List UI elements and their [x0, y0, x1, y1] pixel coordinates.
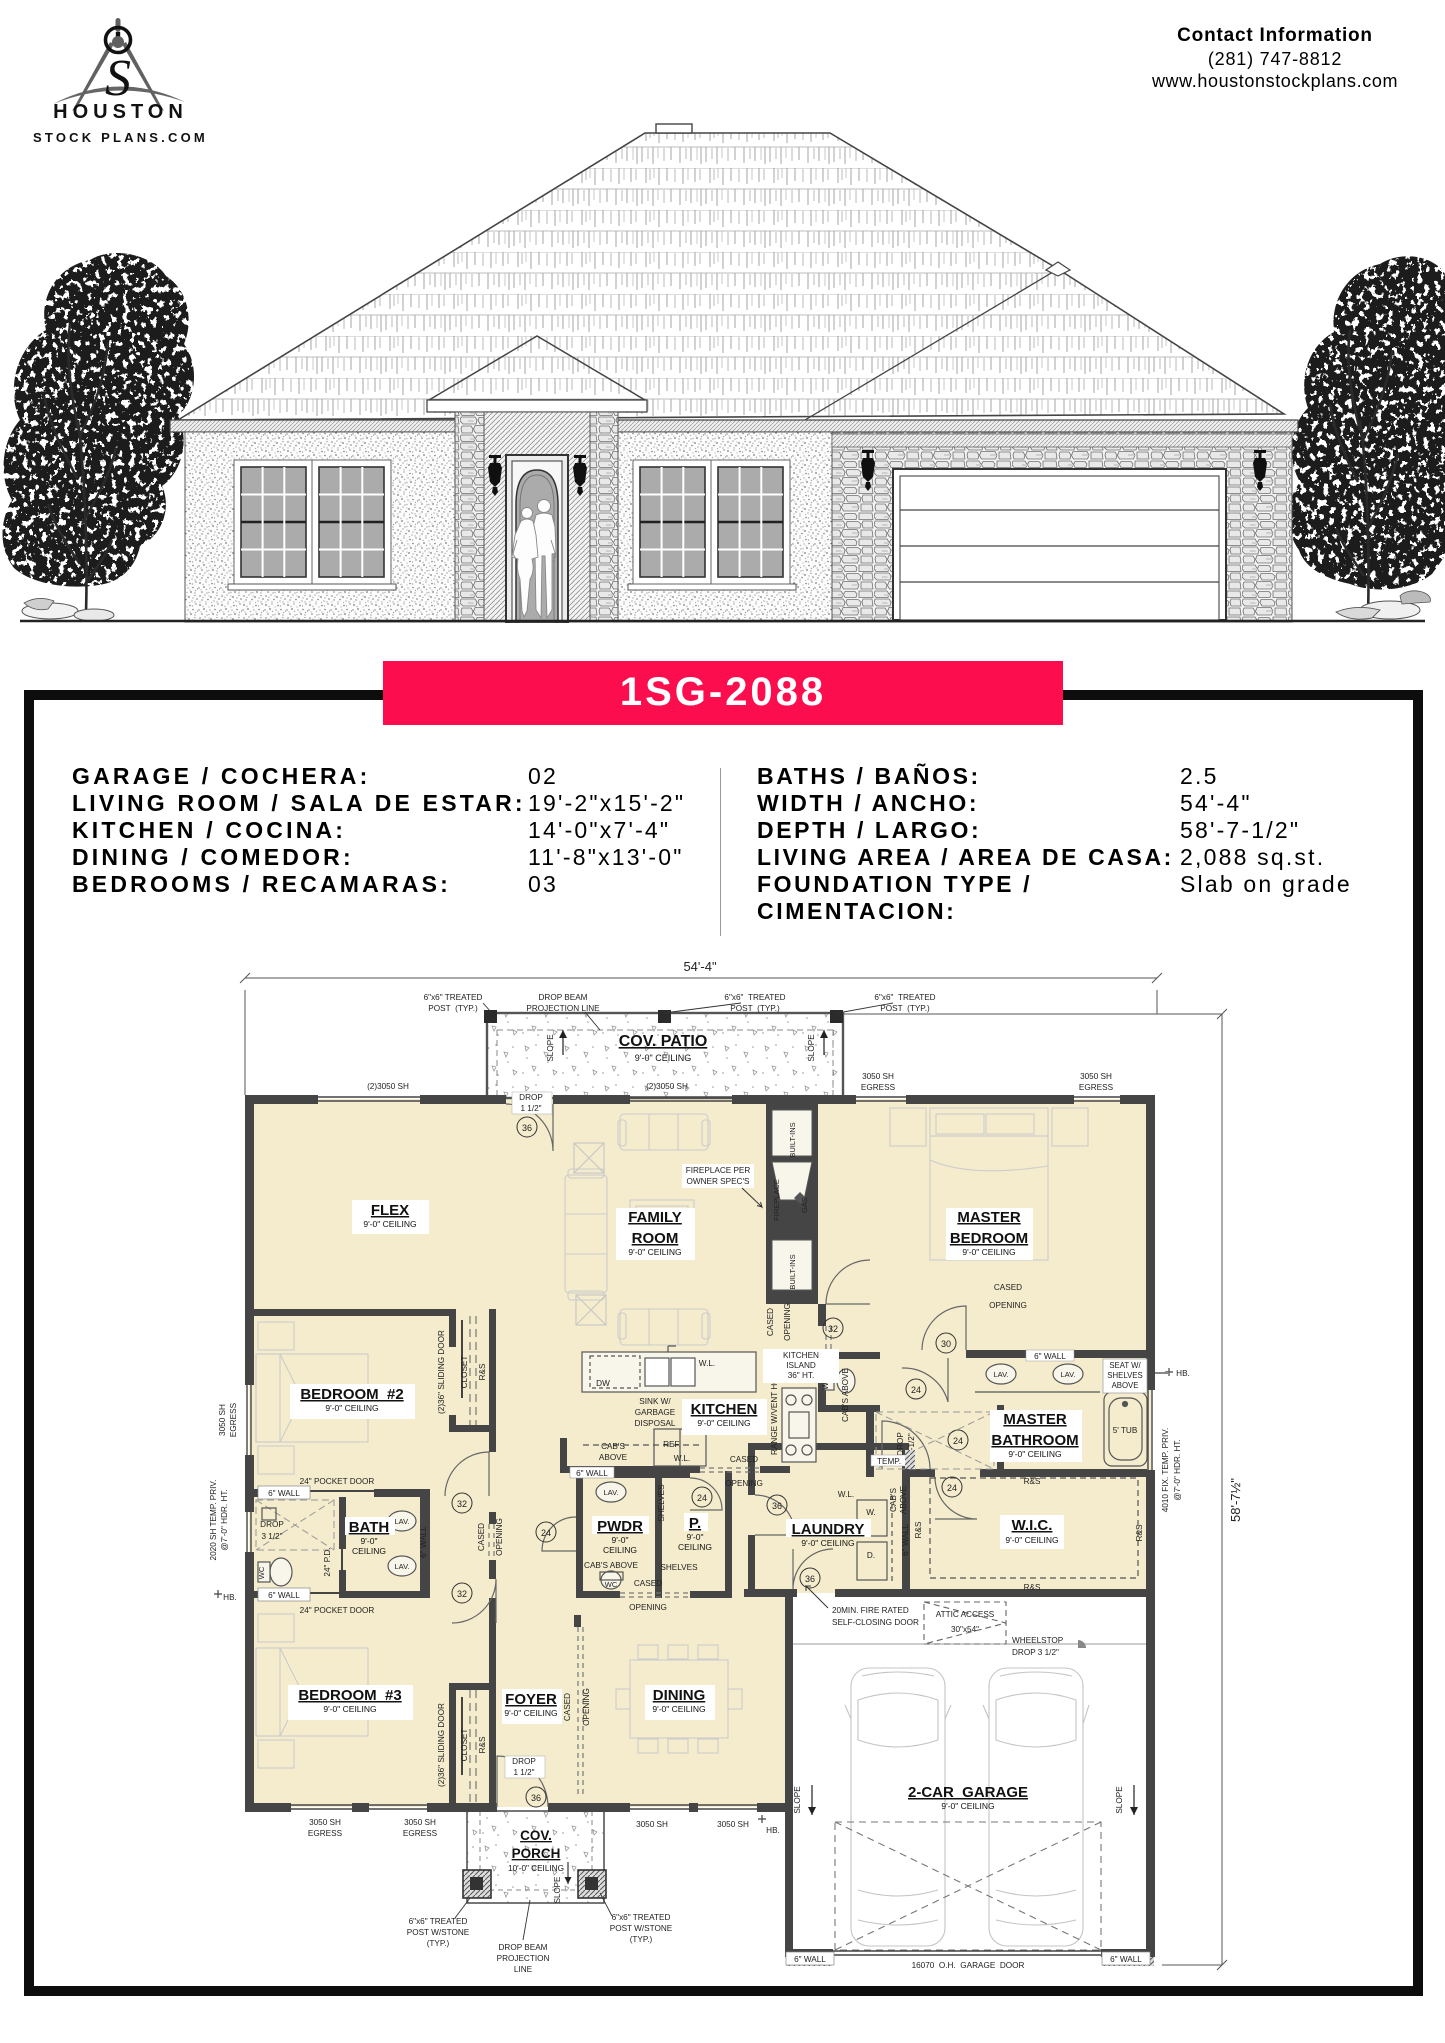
svg-text:OPENING: OPENING	[629, 1603, 667, 1612]
svg-text:(TYP.): (TYP.)	[630, 1935, 653, 1944]
svg-text:3050 SH: 3050 SH	[309, 1818, 341, 1827]
svg-text:(2)3050 SH: (2)3050 SH	[367, 1082, 409, 1091]
svg-text:KITCHEN: KITCHEN	[691, 1401, 758, 1418]
svg-text:BEDROOM: BEDROOM	[950, 1230, 1028, 1247]
svg-text:30"x54": 30"x54"	[951, 1625, 979, 1634]
svg-text:ATTIC ACCESS: ATTIC ACCESS	[936, 1610, 995, 1619]
svg-text:6" WALL: 6" WALL	[268, 1489, 300, 1498]
svg-text:R&S: R&S	[478, 1736, 487, 1753]
svg-text:6" WALL: 6" WALL	[901, 1524, 910, 1556]
svg-text:9'-0" CEILING: 9'-0" CEILING	[363, 1219, 416, 1229]
svg-text:W.I.C.: W.I.C.	[1012, 1517, 1053, 1534]
svg-text:TEMP.: TEMP.	[877, 1457, 901, 1466]
svg-text:24: 24	[953, 1436, 963, 1446]
svg-text:6"x6" TREATED: 6"x6" TREATED	[409, 1917, 468, 1926]
svg-text:EGRESS: EGRESS	[1079, 1083, 1114, 1092]
svg-text:FOYER: FOYER	[505, 1691, 557, 1708]
svg-text:36: 36	[522, 1123, 532, 1133]
svg-text:R&S: R&S	[1024, 1583, 1041, 1592]
svg-text:OPENING: OPENING	[495, 1518, 504, 1556]
svg-text:FLEX: FLEX	[371, 1202, 409, 1219]
svg-text:FIREPLACE PER: FIREPLACE PER	[686, 1166, 751, 1175]
svg-text:BATHROOM: BATHROOM	[991, 1432, 1078, 1449]
svg-text:6" WALL: 6" WALL	[1110, 1955, 1142, 1964]
svg-text:58'-7½": 58'-7½"	[1228, 1478, 1243, 1522]
svg-text:GARBAGE: GARBAGE	[635, 1408, 676, 1417]
svg-text:CAB'S: CAB'S	[889, 1488, 898, 1512]
svg-text:SELF-CLOSING DOOR: SELF-CLOSING DOOR	[832, 1618, 919, 1627]
svg-text:5' TUB: 5' TUB	[1113, 1426, 1138, 1435]
svg-text:ABOVE: ABOVE	[1112, 1381, 1139, 1390]
svg-text:54'-4": 54'-4"	[683, 959, 717, 974]
svg-text:6" WALL: 6" WALL	[576, 1469, 608, 1478]
svg-text:24: 24	[697, 1493, 707, 1503]
svg-text:OPENING: OPENING	[989, 1301, 1027, 1310]
svg-text:SLOPE: SLOPE	[807, 1034, 816, 1062]
svg-text:9'-0" CEILING: 9'-0" CEILING	[325, 1403, 378, 1413]
svg-text:REF.: REF.	[663, 1440, 681, 1449]
svg-text:9'-0" CEILING: 9'-0" CEILING	[801, 1538, 854, 1548]
svg-text:BEDROOM #2: BEDROOM #2	[300, 1386, 403, 1403]
svg-text:36" HT.: 36" HT.	[788, 1371, 815, 1380]
svg-text:3050 SH: 3050 SH	[862, 1072, 894, 1081]
svg-text:6"x6" TREATED: 6"x6" TREATED	[874, 993, 935, 1002]
svg-text:9'-0" CEILING: 9'-0" CEILING	[652, 1704, 705, 1714]
svg-text:@7'-0" HDR. HT.: @7'-0" HDR. HT.	[220, 1489, 229, 1550]
svg-text:DROP: DROP	[512, 1757, 536, 1766]
svg-text:(2)36" SLIDING DOOR: (2)36" SLIDING DOOR	[437, 1703, 446, 1787]
svg-text:24: 24	[947, 1483, 957, 1493]
svg-text:R&S: R&S	[1024, 1477, 1041, 1486]
svg-text:R&S: R&S	[914, 1521, 923, 1538]
svg-text:36: 36	[531, 1793, 541, 1803]
svg-text:CASED: CASED	[477, 1523, 486, 1551]
svg-text:36: 36	[772, 1501, 782, 1511]
svg-text:9'-0" CEILING: 9'-0" CEILING	[504, 1708, 557, 1718]
svg-text:MASTER: MASTER	[1003, 1411, 1067, 1428]
svg-text:(2)3050 SH: (2)3050 SH	[646, 1082, 688, 1091]
svg-text:LINE: LINE	[514, 1965, 533, 1974]
svg-text:9'-0" CEILING: 9'-0" CEILING	[635, 1053, 691, 1063]
svg-text:32: 32	[457, 1589, 467, 1599]
svg-text:HB.: HB.	[223, 1593, 237, 1602]
svg-text:3050 SH: 3050 SH	[218, 1404, 227, 1436]
svg-text:HB.: HB.	[1176, 1369, 1190, 1378]
svg-text:PORCH: PORCH	[512, 1846, 561, 1861]
svg-text:BUILT-INS: BUILT-INS	[788, 1122, 797, 1157]
svg-text:SEAT W/: SEAT W/	[1109, 1361, 1141, 1370]
svg-text:DROP: DROP	[260, 1520, 284, 1529]
svg-text:6" WALL: 6" WALL	[268, 1591, 300, 1600]
svg-text:EGRESS: EGRESS	[229, 1402, 238, 1437]
svg-text:OPENING: OPENING	[783, 1303, 792, 1341]
svg-text:10'-0" CEILING: 10'-0" CEILING	[508, 1864, 564, 1873]
svg-text:EGRESS: EGRESS	[861, 1083, 896, 1092]
svg-text:FIREPLACE: FIREPLACE	[772, 1179, 781, 1221]
svg-text:SHELVES: SHELVES	[660, 1563, 698, 1572]
svg-text:SLOPE: SLOPE	[553, 1877, 562, 1904]
svg-text:SLOPE: SLOPE	[546, 1034, 555, 1062]
svg-text:COV.: COV.	[520, 1828, 552, 1843]
svg-text:9'-0" CEILING: 9'-0" CEILING	[323, 1704, 376, 1714]
svg-text:9'-0" CEILING: 9'-0" CEILING	[628, 1247, 681, 1257]
svg-text:W.L.: W.L.	[699, 1359, 715, 1368]
svg-text:36: 36	[805, 1574, 815, 1584]
svg-text:P.: P.	[689, 1515, 701, 1532]
svg-text:16070 O.H. GARAGE DOOR: 16070 O.H. GARAGE DOOR	[912, 1961, 1025, 1970]
svg-text:FAMILY: FAMILY	[628, 1209, 682, 1226]
svg-text:GAS: GAS	[800, 1197, 809, 1213]
svg-text:1 1/2": 1 1/2"	[520, 1104, 541, 1113]
svg-text:24: 24	[911, 1385, 921, 1395]
svg-text:DW: DW	[596, 1379, 610, 1388]
svg-text:32: 32	[457, 1499, 467, 1509]
svg-text:DROP: DROP	[896, 1432, 905, 1456]
svg-text:CEILING: CEILING	[352, 1546, 386, 1556]
svg-text:CASED: CASED	[634, 1579, 662, 1588]
svg-text:SLOPE: SLOPE	[1115, 1786, 1124, 1814]
svg-text:SINK W/: SINK W/	[639, 1397, 671, 1406]
svg-text:PROJECTION: PROJECTION	[497, 1954, 550, 1963]
svg-text:3 1/2": 3 1/2"	[261, 1532, 282, 1541]
svg-text:9'-0": 9'-0"	[687, 1532, 704, 1542]
svg-text:PROJECTION LINE: PROJECTION LINE	[526, 1004, 600, 1013]
svg-text:CLOSET: CLOSET	[460, 1356, 469, 1389]
svg-text:PWDR: PWDR	[597, 1518, 643, 1535]
svg-text:6"x6" TREATED: 6"x6" TREATED	[724, 993, 785, 1002]
svg-text:OPENING: OPENING	[725, 1479, 763, 1488]
svg-text:@7'-0" HDR. HT.: @7'-0" HDR. HT.	[1173, 1439, 1182, 1500]
svg-text:WHEELSTOP: WHEELSTOP	[1012, 1636, 1064, 1645]
svg-text:EGRESS: EGRESS	[308, 1829, 343, 1838]
svg-text:CASED: CASED	[563, 1693, 572, 1721]
svg-text:W.L.: W.L.	[838, 1490, 854, 1499]
svg-text:ABOVE: ABOVE	[599, 1453, 628, 1462]
svg-text:ISLAND: ISLAND	[786, 1361, 816, 1370]
svg-text:R&S: R&S	[1135, 1524, 1144, 1541]
svg-text:30: 30	[941, 1339, 951, 1349]
svg-text:WC: WC	[605, 1580, 618, 1589]
svg-text:KITCHEN: KITCHEN	[783, 1351, 819, 1360]
svg-text:HB.: HB.	[766, 1826, 780, 1835]
svg-text:6" WALL: 6" WALL	[794, 1955, 826, 1964]
svg-text:20MIN. FIRE RATED: 20MIN. FIRE RATED	[832, 1606, 909, 1615]
svg-text:2-CAR GARAGE: 2-CAR GARAGE	[908, 1784, 1028, 1801]
svg-text:W.L.: W.L.	[674, 1454, 690, 1463]
svg-text:CEILING: CEILING	[678, 1542, 712, 1552]
svg-text:WC: WC	[257, 1566, 266, 1579]
svg-text:DROP: DROP	[519, 1093, 543, 1102]
svg-text:LAV.: LAV.	[1060, 1370, 1075, 1379]
svg-text:POST (TYP.): POST (TYP.)	[730, 1004, 780, 1013]
svg-text:LAV.: LAV.	[993, 1370, 1008, 1379]
svg-text:(TYP.): (TYP.)	[427, 1939, 450, 1948]
svg-text:POST (TYP.): POST (TYP.)	[428, 1004, 478, 1013]
svg-text:DROP BEAM: DROP BEAM	[499, 1943, 548, 1952]
svg-text:9'-0" CEILING: 9'-0" CEILING	[697, 1418, 750, 1428]
svg-text:2020 SH TEMP. PRIV.: 2020 SH TEMP. PRIV.	[209, 1480, 218, 1561]
svg-text:ROOM: ROOM	[632, 1230, 679, 1247]
svg-text:W.: W.	[866, 1508, 876, 1517]
svg-text:1 1/2": 1 1/2"	[513, 1768, 534, 1777]
svg-text:MASTER: MASTER	[957, 1209, 1021, 1226]
svg-text:6" WALL: 6" WALL	[1034, 1352, 1066, 1361]
svg-text:24" P.D.: 24" P.D.	[323, 1547, 332, 1576]
svg-text:6"x6" TREATED: 6"x6" TREATED	[424, 993, 483, 1002]
svg-text:POST W/STONE: POST W/STONE	[407, 1928, 470, 1937]
svg-text:4010 FIX. TEMP. PRIV.: 4010 FIX. TEMP. PRIV.	[1161, 1428, 1170, 1513]
svg-text:9'-0" CEILING: 9'-0" CEILING	[941, 1801, 994, 1811]
svg-text:DROP 3 1/2": DROP 3 1/2"	[1012, 1648, 1059, 1657]
svg-text:SHELVES: SHELVES	[657, 1484, 666, 1522]
svg-text:POST (TYP.): POST (TYP.)	[880, 1004, 930, 1013]
svg-text:3050 SH: 3050 SH	[404, 1818, 436, 1827]
svg-text:BATH: BATH	[349, 1519, 390, 1536]
svg-text:CLOSET: CLOSET	[460, 1729, 469, 1762]
svg-text:LAV.: LAV.	[394, 1517, 409, 1526]
svg-text:BEDROOM #3: BEDROOM #3	[298, 1687, 401, 1704]
svg-text:BUILT-INS: BUILT-INS	[788, 1254, 797, 1289]
svg-text:POST W/STONE: POST W/STONE	[610, 1924, 673, 1933]
svg-text:CEILING: CEILING	[603, 1545, 637, 1555]
svg-text:DROP BEAM: DROP BEAM	[539, 993, 588, 1002]
svg-text:9'-0": 9'-0"	[361, 1536, 378, 1546]
svg-text:OPENING: OPENING	[582, 1688, 591, 1726]
svg-text:LAUNDRY: LAUNDRY	[792, 1521, 865, 1538]
svg-text:LAV.: LAV.	[394, 1562, 409, 1571]
svg-text:24" POCKET DOOR: 24" POCKET DOOR	[300, 1606, 375, 1615]
svg-text:9'-0": 9'-0"	[612, 1535, 629, 1545]
svg-text:9'-0" CEILING: 9'-0" CEILING	[962, 1247, 1015, 1257]
svg-text:R&S: R&S	[478, 1363, 487, 1380]
svg-text:DISPOSAL: DISPOSAL	[635, 1419, 676, 1428]
svg-text:CAB'S ABOVE: CAB'S ABOVE	[841, 1368, 850, 1422]
svg-text:COV. PATIO: COV. PATIO	[619, 1033, 708, 1050]
svg-text:SLOPE: SLOPE	[793, 1786, 802, 1814]
svg-text:D.: D.	[867, 1551, 875, 1560]
svg-text:9'-0" CEILING: 9'-0" CEILING	[1005, 1535, 1058, 1545]
svg-text:24" POCKET DOOR: 24" POCKET DOOR	[300, 1477, 375, 1486]
svg-text:LAV.: LAV.	[603, 1488, 618, 1497]
svg-text:CAB'S: CAB'S	[601, 1442, 625, 1451]
svg-text:6"x6" TREATED: 6"x6" TREATED	[612, 1913, 671, 1922]
svg-text:CASED: CASED	[730, 1455, 758, 1464]
svg-text:SHELVES: SHELVES	[1107, 1371, 1142, 1380]
svg-text:CASED: CASED	[766, 1308, 775, 1336]
svg-text:6" WALL: 6" WALL	[419, 1526, 428, 1558]
svg-text:CAB'S ABOVE: CAB'S ABOVE	[584, 1561, 638, 1570]
svg-text:(2)36" SLIDING DOOR: (2)36" SLIDING DOOR	[437, 1330, 446, 1414]
svg-text:OWNER SPEC'S: OWNER SPEC'S	[687, 1177, 751, 1186]
svg-text:24: 24	[541, 1528, 551, 1538]
svg-text:DINING: DINING	[653, 1687, 706, 1704]
svg-text:EGRESS: EGRESS	[403, 1829, 438, 1838]
svg-text:ABOVE: ABOVE	[899, 1485, 908, 1514]
svg-text:32: 32	[828, 1324, 838, 1334]
svg-text:3050 SH: 3050 SH	[717, 1820, 749, 1829]
svg-text:9'-0" CEILING: 9'-0" CEILING	[1008, 1449, 1061, 1459]
svg-text:3050 SH: 3050 SH	[1080, 1072, 1112, 1081]
svg-text:3050 SH: 3050 SH	[636, 1820, 668, 1829]
svg-text:CASED: CASED	[994, 1283, 1022, 1292]
